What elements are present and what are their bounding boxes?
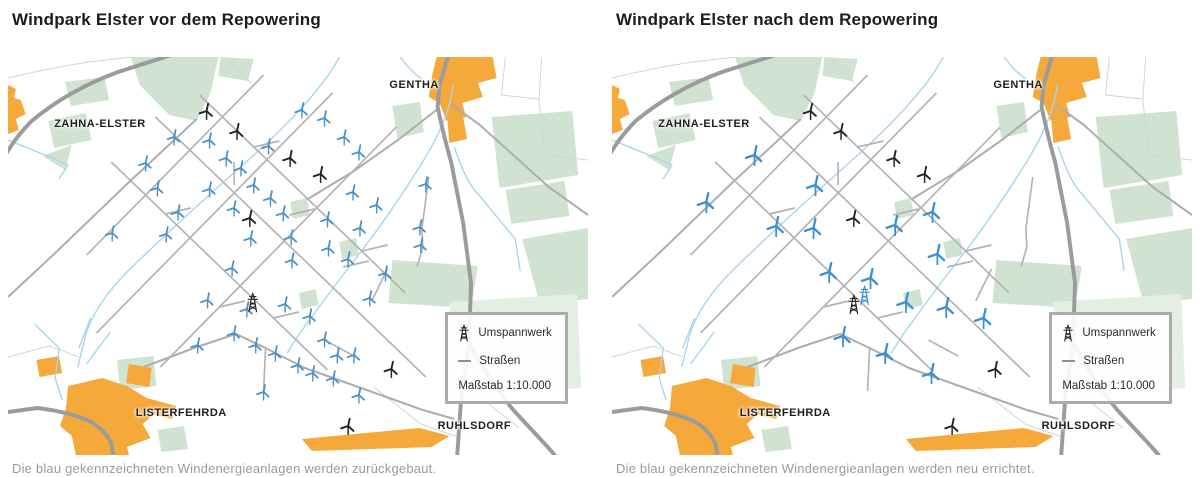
wind-turbine-icon-blue: [201, 293, 213, 308]
wind-turbine-icon-blue: [160, 227, 172, 242]
caption-after: Die blau gekennzeichneten Windenergieanl…: [616, 461, 1192, 476]
wind-turbine-icon-black: [945, 419, 957, 435]
power-pylon-icon: [458, 324, 470, 343]
page-title-after: Windpark Elster nach dem Repowering: [616, 9, 1192, 31]
wind-turbine-icon-black: [847, 211, 859, 227]
wind-turbine-icon-blue: [887, 216, 902, 236]
wind-turbine-icon-black: [988, 362, 1000, 378]
road-line-icon: [1062, 360, 1075, 362]
wind-turbine-icon-blue: [346, 185, 358, 200]
wind-turbine-icon-blue: [257, 385, 269, 400]
wind-turbine-icon-blue: [228, 201, 240, 216]
legend-strassen-label: Straßen: [479, 355, 520, 367]
page: Windpark Elster vor dem Repowering ZAHNA…: [0, 0, 1200, 477]
panel-before-repowering: Windpark Elster vor dem Repowering ZAHNA…: [8, 9, 588, 477]
panel-after-repowering: Windpark Elster nach dem Repowering ZAHN…: [612, 9, 1192, 477]
wind-turbine-icon-blue: [923, 364, 938, 384]
wind-turbine-icon-blue: [877, 344, 892, 364]
wind-turbine-icon-blue: [277, 206, 289, 221]
wind-turbine-icon-blue: [924, 203, 939, 223]
legend-row-strassen: Straßen: [1062, 355, 1159, 367]
wind-turbine-icon-black: [283, 151, 295, 167]
road-line-icon: [458, 360, 471, 362]
wind-turbine-icon-blue: [264, 191, 276, 206]
page-title-before: Windpark Elster vor dem Repowering: [12, 9, 588, 31]
wind-turbine-icon-blue: [347, 348, 359, 363]
wind-turbine-icon-blue: [805, 219, 820, 239]
map-legend: Umspannwerk Straßen Maßstab 1:10.000: [1049, 312, 1172, 404]
wind-turbine-icon-blue: [106, 226, 118, 241]
wind-turbine-icon-blue: [352, 388, 364, 403]
legend-umspannwerk-label: Umspannwerk: [478, 327, 552, 339]
legend-row-strassen: Straßen: [458, 355, 555, 367]
power-pylon-icon: [860, 287, 870, 306]
wind-turbine-icon-blue: [414, 238, 426, 253]
wind-turbine-icon-blue: [171, 205, 183, 220]
map-after: ZAHNA-ELSTERGENTHALISTERFEHRDARUHLSDORF …: [612, 57, 1192, 455]
legend-row-umspannwerk: Umspannwerk: [1062, 324, 1159, 343]
legend-row-umspannwerk: Umspannwerk: [458, 324, 555, 343]
map-legend: Umspannwerk Straßen Maßstab 1:10.000: [445, 312, 568, 404]
wind-turbine-icon-blue: [303, 309, 315, 324]
wind-turbine-icon-blue: [286, 253, 298, 268]
wind-turbine-icon-blue: [244, 231, 256, 246]
wind-turbine-icon-black: [918, 167, 930, 183]
legend-scale-label: Maßstab 1:10.000: [458, 380, 555, 392]
map-before: ZAHNA-ELSTERGENTHALISTERFEHRDARUHLSDORF …: [8, 57, 588, 455]
wind-turbine-icon-blue: [220, 151, 232, 166]
power-pylon-icon: [248, 294, 258, 313]
wind-turbine-icon-blue: [318, 332, 330, 347]
wind-turbine-icon-blue: [322, 241, 334, 256]
wind-turbine-icon-black: [243, 211, 255, 227]
legend-umspannwerk-label: Umspannwerk: [1082, 327, 1156, 339]
wind-turbine-icon-blue: [295, 103, 307, 118]
caption-before: Die blau gekennzeichneten Windenergieanl…: [12, 461, 588, 476]
wind-turbine-icon-blue: [370, 198, 382, 213]
wind-turbine-icon-blue: [929, 245, 944, 265]
wind-turbine-icon-blue: [331, 348, 343, 363]
wind-turbine-icon-black: [341, 419, 353, 435]
wind-turbine-icon-blue: [353, 221, 365, 236]
power-pylon-icon: [849, 296, 859, 315]
legend-scale-label: Maßstab 1:10.000: [1062, 380, 1159, 392]
wind-turbine-icon-blue: [279, 297, 291, 312]
power-pylon-icon: [1062, 324, 1074, 343]
wind-turbine-icon-black: [384, 362, 396, 378]
wind-turbine-icon-blue: [338, 130, 350, 145]
wind-turbine-icon-blue: [318, 111, 330, 126]
wind-turbine-icon-black: [887, 151, 899, 167]
wind-turbine-icon-blue: [247, 178, 259, 193]
wind-turbine-icon-blue: [352, 145, 364, 160]
legend-strassen-label: Straßen: [1083, 355, 1124, 367]
wind-turbine-icon-black: [314, 167, 326, 183]
